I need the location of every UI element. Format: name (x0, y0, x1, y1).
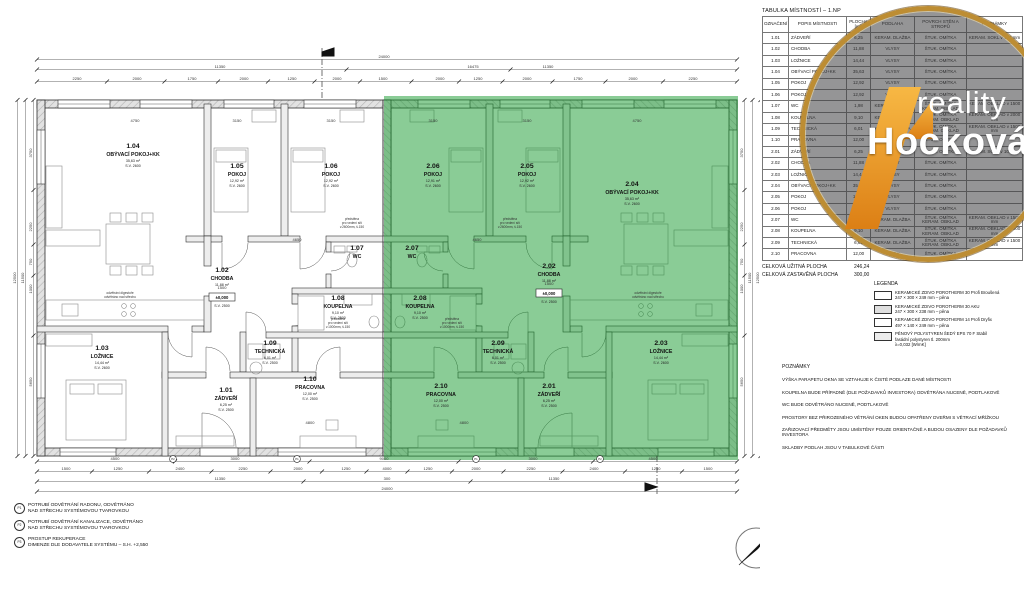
pipe-marker-P1: P1 (294, 456, 301, 463)
dimension-row: 24000 (35, 54, 739, 62)
desk (300, 436, 356, 448)
notes-title: POZNÁMKY (782, 364, 1020, 370)
level-mark: ±0,000S.V. 2500 (209, 293, 235, 308)
plan-text: TECHNICKÁ (483, 348, 514, 355)
plan-text: P2 (598, 457, 602, 461)
plan-text: 2.03 (654, 340, 667, 347)
room-label-1.05: 1.05POKOJ12,92 m²S.V. 2600 (228, 163, 246, 188)
total-value: 246,24 (854, 264, 869, 270)
plan-text: 1.09 (263, 340, 276, 347)
room-label-1.07: 1.07WC (350, 245, 363, 260)
table-cell: 1.10 (763, 135, 789, 146)
agency-logo: reality Hocková (800, 6, 1024, 262)
plan-text: S.V. 2500 (302, 397, 317, 401)
plan-text: 12,92 m² (324, 179, 339, 183)
plan-text: 11350 (215, 476, 227, 481)
plan-text: 2000 (133, 76, 143, 81)
plan-text: 6,01 m² (264, 356, 277, 360)
room-label-1.03: 1.03LOŽNICE14,44 m²S.V. 2600 (91, 345, 114, 370)
note-line: ZAŘIZOVACÍ PŘEDMĚTY JSOU UMÍSTĚNY POUZE … (782, 427, 1020, 437)
plan-text: 2250 (73, 76, 83, 81)
site-note-P1: P1POTRUBÍ ODVĚTRÁNÍ RADONU, ODVĚTRÁNONAD… (14, 503, 148, 516)
table-cell: 2.01 (763, 146, 789, 157)
notes: POZNÁMKY VÝŠKA PARAPETU OKNA SE VZTAHUJE… (782, 364, 1020, 458)
pipe-marker-P2: P2 (597, 456, 604, 463)
plan-text: 11500 (747, 272, 752, 284)
table-cell: 2.10 (763, 249, 789, 260)
plan-text: S.V. 2500 (490, 361, 505, 365)
plan-text: 4750 (633, 118, 643, 123)
plan-text: 4500 (649, 456, 659, 461)
plan-text: P2 (171, 457, 175, 461)
plan-text: CHODBA (538, 272, 561, 278)
dimension-row: 1135030011350 (35, 476, 739, 484)
plan-text: 14,44 m² (654, 356, 669, 360)
plan-text: LOŽNICE (91, 352, 114, 360)
plan-text: 12,00 m² (434, 399, 449, 403)
plan-text: 2250 (239, 466, 249, 471)
plan-text: 2000 (472, 466, 482, 471)
site-note-text: PROSTUP REKUPERACEDIMENZE DLE DODAVATELE… (28, 537, 148, 550)
plan-text: ZÁDVEŘÍ (215, 394, 238, 402)
kitchen-sink (62, 304, 78, 316)
plan-text: POKOJ (424, 172, 442, 178)
plan-text: 3150 (429, 118, 439, 123)
dimension-row: 2250200017502000125020001500200012502000… (35, 76, 739, 84)
plan-text: S.V. 2500 (262, 361, 277, 365)
plan-text: odvětráno nad střechu (104, 295, 136, 299)
plan-text: 35,63 m² (625, 197, 640, 201)
dimension-column: 12500 (12, 98, 20, 458)
dimension-row: 24000 (35, 486, 739, 494)
plan-text: 6,25 m² (220, 403, 233, 407)
total-label: CELKOVÁ ZASTAVĚNÁ PLOCHA (762, 272, 854, 278)
table-cell: 1.04 (763, 67, 789, 78)
dimension-column: 3750225075010005650 (28, 98, 36, 458)
pipe-marker-P1: P1 (473, 456, 480, 463)
legend-item: KERAMICKÉ ZDIVO POROTHERM 30 Profi Brouš… (874, 290, 1022, 301)
plan-text: 2.07 (405, 245, 418, 252)
plan-text: 4650 (293, 237, 303, 242)
legend-item: PĚNOVÝ POLYSTYREN ŠEDÝ EPS 70 F Stabilfa… (874, 331, 1022, 347)
plan-text: 4750 (131, 118, 141, 123)
entrance-door-gap (200, 448, 238, 456)
plan-text: 11350 (543, 64, 555, 69)
plan-text: 2250 (28, 222, 33, 232)
plan-text: OBÝVACÍ POKOJ+KK (106, 150, 160, 158)
plan-text: 3750 (739, 148, 744, 158)
table-cell: 1.03 (763, 55, 789, 66)
plan-text: 1250 (424, 466, 434, 471)
plan-text: LOŽNICE (650, 347, 673, 355)
table-cell: 1.05 (763, 78, 789, 89)
legend: LEGENDA KERAMICKÉ ZDIVO POROTHERM 30 Pro… (874, 281, 1022, 350)
plan-text: 12,92 m² (230, 179, 245, 183)
plan-text: 1250 (342, 466, 352, 471)
plan-text: 3000 (529, 456, 539, 461)
legend-text: KERAMICKÉ ZDIVO POROTHERM 30 AKU247 × 30… (895, 304, 980, 315)
pipe-tag-icon: P1 (14, 503, 25, 514)
plan-text: 1.03 (95, 345, 108, 352)
plan-text: 750 (28, 258, 33, 265)
plan-text: v.1000mm, š.150 (440, 325, 464, 329)
plan-text: TECHNICKÁ (255, 348, 286, 355)
kitchen-counter (46, 300, 204, 320)
plan-text: 2.10 (434, 383, 447, 390)
toilet (369, 316, 379, 328)
dimension-column: 3750225075010005650 (739, 98, 747, 458)
note-line: VÝŠKA PARAPETU OKNA SE VZTAHUJE K ČISTÉ … (782, 377, 1020, 382)
plan-text: 9000 (380, 456, 390, 461)
plan-text: 2250 (689, 76, 699, 81)
site-notes: P1POTRUBÍ ODVĚTRÁNÍ RADONU, ODVĚTRÁNONAD… (14, 503, 148, 554)
plan-text: 3150 (233, 118, 243, 123)
plan-text: v.1000mm, š.150 (326, 325, 350, 329)
plan-text: 1250 (114, 466, 124, 471)
plan-text: 1.01 (219, 387, 232, 394)
double-bed (66, 380, 126, 440)
plan-text: 2000 (333, 76, 343, 81)
plan-text: 3150 (523, 118, 533, 123)
plan-text: 4650 (473, 237, 483, 242)
room-label-1.10: 1.10PRACOVNA12,00 m²S.V. 2500 (295, 376, 325, 401)
plan-text: 14,44 m² (95, 361, 110, 365)
plan-text: S.V. 2500 (541, 404, 556, 408)
plan-text: v.2600mm, š.150 (498, 225, 522, 229)
plan-text: 2.06 (426, 163, 439, 170)
plan-text: S.V. 2600 (94, 366, 109, 370)
table-cell: 2.03 (763, 169, 789, 180)
plan-text: 5650 (28, 377, 33, 387)
table-cell: 2.09 (763, 238, 789, 249)
plan-text: S.V. 2500 (541, 300, 556, 304)
dimension-row: 113501647511350 (35, 64, 739, 72)
plan-text: 1.05 (230, 163, 243, 170)
note-line: PROSTORY BEZ PŘIROZENÉHO VĚTRÁNÍ OKEN BU… (782, 415, 1020, 420)
plan-text: 5650 (739, 377, 744, 387)
plan-text: 4800 (460, 420, 470, 425)
plan-text: 12500 (12, 272, 17, 284)
plan-text: 11350 (549, 476, 561, 481)
plan-text: 2000 (294, 466, 304, 471)
plan-text: S.V. 2600 (653, 361, 668, 365)
table-totals: CELKOVÁ UŽITNÁ PLOCHA246,24CELKOVÁ ZASTA… (762, 264, 1022, 278)
plan-text: 3750 (28, 148, 33, 158)
plan-text: 2250 (739, 222, 744, 232)
dining-table (106, 224, 150, 264)
note-line: KOUPELNA BUDE PŘÍPADNĚ (DLE POŽADAVKŮ IN… (782, 390, 1020, 395)
legend-swatch-icon (874, 305, 892, 314)
pipe-marker-P2: P2 (170, 456, 177, 463)
plan-text: 2000 (523, 76, 533, 81)
plan-text: 16475 (467, 64, 479, 69)
note-line: WC BUDE ODVĚTRÁNO NUCENĚ, PODTLAKOVĚ (782, 402, 1020, 407)
plan-text: 2.09 (491, 340, 504, 347)
plan-text: 750 (739, 258, 744, 265)
plan-text: 1000 (28, 284, 33, 294)
plan-text: 2400 (176, 466, 186, 471)
plan-text: S.V. 2600 (519, 184, 534, 188)
legend-text: PĚNOVÝ POLYSTYREN ŠEDÝ EPS 70 F Stabilfa… (895, 331, 987, 347)
plan-text: 2250 (527, 466, 537, 471)
desk (252, 110, 276, 122)
plan-text: S.V. 2500 (218, 408, 233, 412)
legend-text: KERAMICKÉ ZDIVO POROTHERM 30 Profi Brouš… (895, 290, 999, 301)
total-row: CELKOVÁ ZASTAVĚNÁ PLOCHA300,00 (762, 272, 1022, 278)
plan-text: ±0,000 (543, 291, 556, 296)
plan-text: 1500 (545, 281, 555, 286)
site-note-P2: P2POTRUBÍ ODVĚTRÁNÍ KANALIZACE, ODVĚTRÁN… (14, 520, 148, 533)
plan-text: 6,01 m² (492, 356, 505, 360)
plan-text: S.V. 2600 (323, 184, 338, 188)
table-cell: 1.02 (763, 44, 789, 55)
plan-text: POKOJ (518, 172, 536, 178)
desk (340, 110, 364, 122)
plan-text: 2.08 (413, 295, 426, 302)
plan-text: OBÝVACÍ POKOJ+KK (605, 188, 659, 196)
plan-text: 2.02 (542, 263, 555, 270)
plan-text: 9,10 m² (414, 311, 427, 315)
plan-text: 1250 (474, 76, 484, 81)
plan-text: S.V. 2600 (229, 184, 244, 188)
total-row: CELKOVÁ UŽITNÁ PLOCHA246,24 (762, 264, 1022, 270)
room-label-1.02: 1.02CHODBA11,88 m² (211, 267, 234, 287)
plan-text: 1500 (704, 466, 714, 471)
plan-text: S.V. 2500 (433, 404, 448, 408)
plan-text: 6,25 m² (543, 399, 556, 403)
room-label-2.05: 2.05POKOJ12,92 m²S.V. 2600 (518, 163, 536, 188)
plan-text: 1.08 (331, 295, 344, 302)
site-note-P3: P3PROSTUP REKUPERACEDIMENZE DLE DODAVATE… (14, 537, 148, 550)
plan-text: 1500 (62, 466, 72, 471)
plan-text: 2000 (629, 76, 639, 81)
page: S 1.01ZÁDVEŘÍ6,25 m²S.V. 25001.02CHODBA1… (0, 0, 1024, 593)
plan-text: 4500 (111, 456, 121, 461)
plan-text: 2.01 (542, 383, 555, 390)
room-label-2.06: 2.06POKOJ12,91 m²S.V. 2600 (424, 163, 442, 188)
plan-text: 1250 (288, 76, 298, 81)
legend-swatch-icon (874, 332, 892, 341)
total-label: CELKOVÁ UŽITNÁ PLOCHA (762, 264, 854, 270)
plan-text: 12,00 m² (303, 392, 318, 396)
dimension-row: 1500125024002250200012504000125020002250… (35, 466, 739, 474)
plan-text: 24000 (381, 486, 393, 491)
plan-text: POKOJ (228, 172, 246, 178)
plan-text: P1 (474, 457, 478, 461)
plan-text: 1.02 (215, 267, 228, 274)
plan-text: 1.10 (303, 376, 316, 383)
wardrobe (46, 334, 92, 346)
table-cell: 1.06 (763, 89, 789, 100)
doors (168, 243, 350, 447)
plan-text: 1.06 (324, 163, 337, 170)
plan-text: 4800 (306, 420, 316, 425)
site-note-text: POTRUBÍ ODVĚTRÁNÍ RADONU, ODVĚTRÁNONAD S… (28, 503, 134, 516)
legend-swatch-icon (874, 318, 892, 327)
legend-title: LEGENDA (874, 281, 1022, 287)
total-value: 300,00 (854, 272, 869, 278)
plan-text: 1500 (218, 285, 228, 290)
table-cell: 1.01 (763, 33, 789, 44)
plan-text: KOUPELNA (323, 304, 352, 310)
sofa (46, 166, 62, 228)
plan-text: ZÁDVEŘÍ (538, 390, 561, 398)
table-cell: 1.09 (763, 124, 789, 135)
plan-text: 1250 (652, 466, 662, 471)
plan-text: 35,63 m² (126, 159, 141, 163)
plan-text: 12,92 m² (520, 179, 535, 183)
plan-text: WC (353, 254, 362, 260)
table-cell: 2.06 (763, 203, 789, 214)
note-line: SKLADBY PODLAH JSOU V TABULKOVÉ ČÁSTI (782, 445, 1020, 450)
plan-text: 11350 (215, 64, 227, 69)
plan-text: 12,91 m² (426, 179, 441, 183)
plan-text: CHODBA (211, 276, 234, 282)
plan-text: v.2600mm, š.150 (340, 225, 364, 229)
dimension-column: 11500 (747, 98, 755, 458)
dimension-column: 11500 (20, 98, 28, 458)
plan-text: 2.05 (520, 163, 533, 170)
plan-text: 1750 (188, 76, 198, 81)
plan-text: S.V. 2600 (125, 164, 140, 168)
pipe-tag-icon: P2 (14, 520, 25, 531)
plan-text: S.V. 2500 (412, 316, 427, 320)
logo-word-reality: reality (917, 85, 1007, 121)
room-label-1.06: 1.06POKOJ12,92 m²S.V. 2600 (322, 163, 340, 188)
table-cell: 2.05 (763, 192, 789, 203)
plan-text: S.V. 2600 (425, 184, 440, 188)
plan-text: PRACOVNA (295, 385, 325, 391)
table-cell: 1.07 (763, 101, 789, 112)
plan-text: 1000 (739, 284, 744, 294)
plan-text: WC (408, 254, 417, 260)
legend-item: KERAMICKÉ ZDIVO POROTHERM 14 Profi Dryfi… (874, 317, 1022, 328)
table-cell: 2.04 (763, 181, 789, 192)
legend-swatch-icon (874, 291, 892, 300)
plan-text: KOUPELNA (405, 304, 434, 310)
plan-text: 24000 (378, 54, 390, 59)
plan-text: S.V. 2600 (624, 202, 639, 206)
site-note-text: POTRUBÍ ODVĚTRÁNÍ KANALIZACE, ODVĚTRÁNON… (28, 520, 143, 533)
bathtub (298, 296, 324, 330)
pipe-tag-icon: P3 (14, 537, 25, 548)
plan-text: 1500 (379, 76, 389, 81)
plan-text: S.V. 2500 (214, 304, 229, 308)
plan-text: POKOJ (322, 172, 340, 178)
legend-item: KERAMICKÉ ZDIVO POROTHERM 30 AKU247 × 30… (874, 304, 1022, 315)
plan-text: 3150 (327, 118, 337, 123)
plan-text: 1.07 (350, 245, 363, 252)
plan-text: 11500 (20, 272, 25, 284)
table-cell: 2.08 (763, 226, 789, 237)
plan-text: 9,10 m² (332, 311, 345, 315)
room-label-1.04: 1.04OBÝVACÍ POKOJ+KK35,63 m²S.V. 2600 (106, 143, 160, 168)
closet (176, 436, 234, 446)
room-label-1.01: 1.01ZÁDVEŘÍ6,25 m²S.V. 2500 (215, 387, 238, 412)
plan-text: 1750 (574, 76, 584, 81)
logo-word-hockova: Hocková (867, 121, 1024, 164)
table-cell: 2.07 (763, 215, 789, 226)
legend-text: KERAMICKÉ ZDIVO POROTHERM 14 Profi Dryfi… (895, 317, 992, 328)
table-cell: 1.08 (763, 112, 789, 123)
plan-text: odvětráno nad střechu (632, 295, 664, 299)
plan-text: 4000 (383, 466, 393, 471)
plan-text: PRACOVNA (426, 392, 456, 398)
bed (291, 148, 325, 212)
plan-text: 2000 (240, 76, 250, 81)
plan-text: 2000 (436, 76, 446, 81)
plan-text: ±0,000 (216, 295, 229, 300)
plan-text: P1 (295, 457, 299, 461)
plan-text: 300 (384, 476, 391, 481)
plan-text: 2400 (590, 466, 600, 471)
plan-text: 3000 (231, 456, 241, 461)
plan-text: 1.04 (126, 143, 139, 150)
column-header: OZNAČENÍ (763, 17, 789, 33)
plan-text: 2.04 (625, 181, 638, 188)
table-cell: 2.02 (763, 158, 789, 169)
